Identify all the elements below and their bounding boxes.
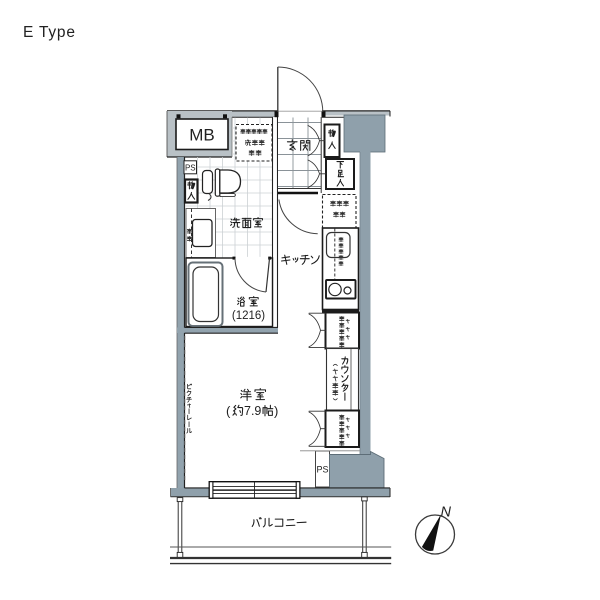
svg-text:E Type: E Type: [23, 24, 76, 41]
svg-text:PS: PS: [185, 163, 196, 172]
svg-text:N: N: [441, 505, 452, 521]
svg-text:7.9: 7.9: [244, 404, 261, 418]
svg-text:(: (: [226, 403, 231, 418]
svg-text:PS: PS: [316, 465, 328, 475]
svg-text:(1216): (1216): [232, 310, 265, 322]
svg-text:): ): [274, 403, 278, 418]
svg-text:MB: MB: [189, 126, 215, 145]
